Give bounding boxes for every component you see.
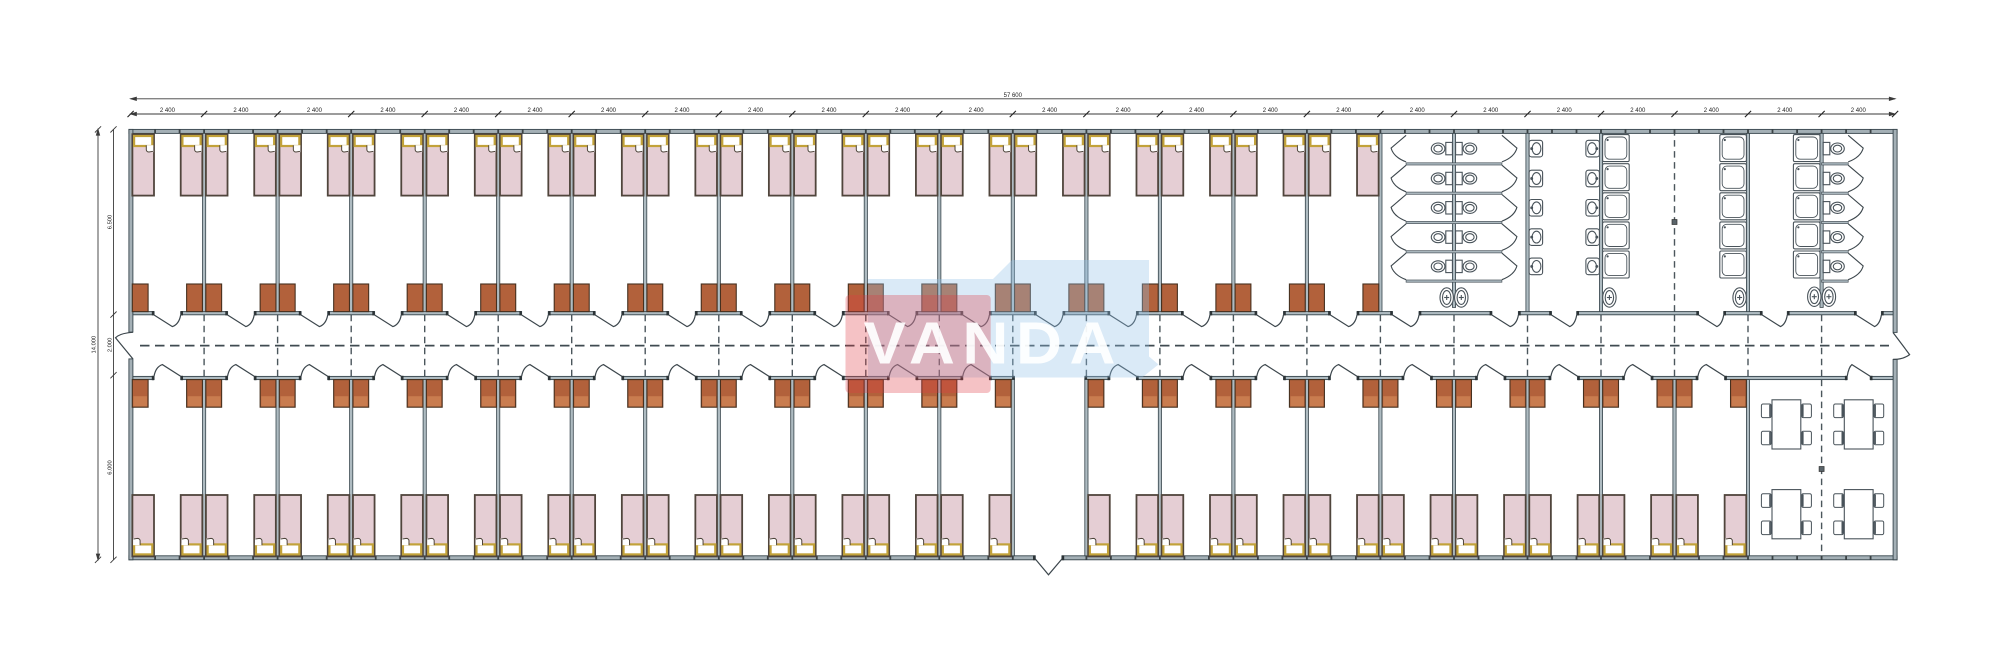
- svg-text:2 400: 2 400: [748, 108, 764, 114]
- svg-text:2 400: 2 400: [233, 108, 249, 114]
- svg-text:2 400: 2 400: [1263, 108, 1279, 114]
- svg-text:VANDA: VANDA: [864, 311, 1124, 377]
- svg-text:2 400: 2 400: [1116, 108, 1132, 114]
- svg-text:2 400: 2 400: [1557, 108, 1573, 114]
- svg-text:2 400: 2 400: [1042, 108, 1058, 114]
- svg-text:2 400: 2 400: [1336, 108, 1352, 114]
- svg-text:2 400: 2 400: [1851, 108, 1867, 114]
- svg-text:14.000: 14.000: [92, 336, 98, 354]
- svg-text:2 400: 2 400: [1704, 108, 1720, 114]
- svg-text:2 400: 2 400: [1483, 108, 1499, 114]
- svg-text:2 400: 2 400: [160, 108, 176, 114]
- svg-text:2 400: 2 400: [969, 108, 985, 114]
- svg-text:2 400: 2 400: [601, 108, 617, 114]
- svg-text:2 400: 2 400: [1410, 108, 1426, 114]
- svg-text:2 400: 2 400: [674, 108, 690, 114]
- svg-text:6.000: 6.000: [107, 460, 113, 475]
- svg-text:2 400: 2 400: [307, 108, 323, 114]
- svg-text:2 400: 2 400: [454, 108, 470, 114]
- svg-text:2.000: 2.000: [107, 338, 113, 353]
- svg-text:2 400: 2 400: [380, 108, 396, 114]
- svg-text:2 400: 2 400: [1630, 108, 1646, 114]
- svg-text:2 400: 2 400: [527, 108, 543, 114]
- svg-text:2 400: 2 400: [895, 108, 911, 114]
- svg-text:2 400: 2 400: [1777, 108, 1793, 114]
- svg-text:2 400: 2 400: [821, 108, 837, 114]
- svg-text:2 400: 2 400: [1189, 108, 1205, 114]
- svg-text:6.500: 6.500: [107, 215, 113, 230]
- svg-text:57 600: 57 600: [1004, 93, 1023, 99]
